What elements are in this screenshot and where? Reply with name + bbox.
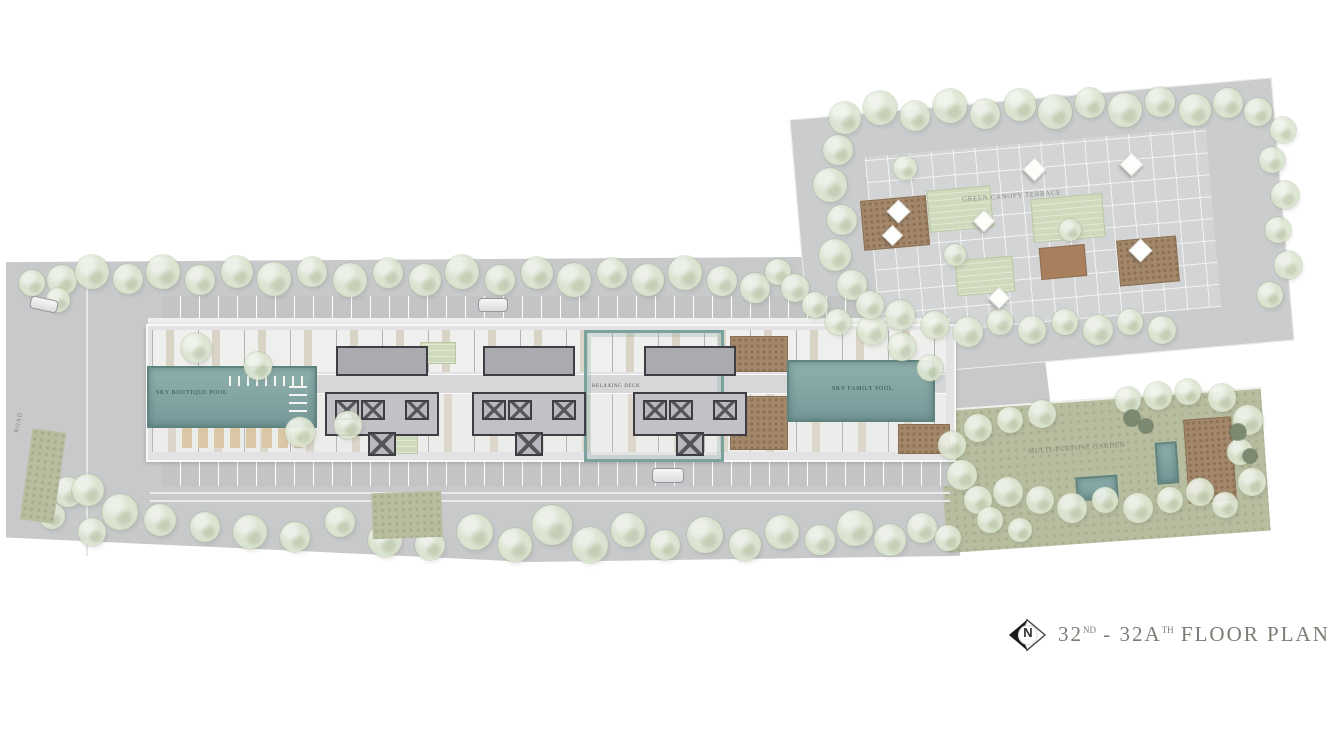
tree-icon bbox=[813, 168, 847, 202]
tree-icon bbox=[457, 514, 493, 550]
tree-icon bbox=[964, 414, 992, 442]
tree-icon bbox=[907, 513, 937, 543]
tree-icon bbox=[1075, 88, 1105, 118]
tree-icon bbox=[1265, 217, 1291, 243]
tree-icon bbox=[1212, 492, 1238, 518]
tree-icon bbox=[823, 135, 853, 165]
tree-icon bbox=[1145, 87, 1175, 117]
tree-icon bbox=[970, 99, 1000, 129]
tree-icon bbox=[632, 264, 664, 296]
tree-icon bbox=[333, 263, 367, 297]
tree-icon bbox=[987, 309, 1013, 335]
tree-icon bbox=[900, 101, 930, 131]
tree-icon bbox=[185, 265, 215, 295]
tree-icon bbox=[1186, 478, 1214, 506]
tree-icon bbox=[102, 494, 138, 530]
stair-core bbox=[483, 346, 575, 376]
tree-icon bbox=[334, 411, 362, 439]
tree-icon bbox=[938, 431, 966, 459]
tree-icon bbox=[113, 264, 143, 294]
tree-icon bbox=[1123, 493, 1153, 523]
tree-icon bbox=[78, 518, 106, 546]
tree-icon bbox=[1052, 309, 1078, 335]
tree-icon bbox=[944, 244, 966, 266]
tree-icon bbox=[221, 256, 253, 288]
fir-tree-icon bbox=[1230, 424, 1246, 440]
tree-icon bbox=[893, 156, 917, 180]
car-icon bbox=[478, 298, 508, 312]
tree-icon bbox=[977, 507, 1003, 533]
tree-icon bbox=[885, 300, 915, 330]
title-suffix: FLOOR PLAN bbox=[1174, 622, 1330, 646]
tree-icon bbox=[1028, 400, 1056, 428]
plan-title: 32ND - 32ATH FLOOR PLAN bbox=[1058, 622, 1330, 647]
elevator-shaft-icon bbox=[482, 400, 506, 420]
tree-icon bbox=[1144, 382, 1172, 410]
tree-icon bbox=[707, 266, 737, 296]
car-icon bbox=[652, 468, 684, 483]
tree-icon bbox=[687, 517, 723, 553]
elevator-shaft-icon bbox=[515, 432, 543, 456]
pool-lounger-ticks bbox=[289, 382, 307, 412]
tree-icon bbox=[1026, 486, 1054, 514]
tree-icon bbox=[1175, 379, 1201, 405]
left-pool-label: SKY BOUTIQUE POOL bbox=[156, 390, 227, 396]
tree-icon bbox=[765, 515, 799, 549]
elevator-shaft-icon bbox=[361, 400, 385, 420]
tree-icon bbox=[1257, 282, 1283, 308]
tree-icon bbox=[1092, 487, 1118, 513]
tree-icon bbox=[933, 89, 967, 123]
tree-icon bbox=[297, 257, 327, 287]
tree-icon bbox=[1157, 487, 1183, 513]
tree-icon bbox=[485, 265, 515, 295]
tree-icon bbox=[863, 91, 897, 125]
lane-marking bbox=[150, 492, 950, 494]
tree-icon bbox=[1057, 493, 1087, 523]
tree-icon bbox=[1004, 89, 1036, 121]
relaxing-deck-label: RELAXING DECK bbox=[592, 384, 640, 389]
tree-icon bbox=[1038, 95, 1072, 129]
tree-icon bbox=[825, 309, 851, 335]
tree-icon bbox=[1008, 518, 1032, 542]
elevator-core bbox=[633, 392, 747, 436]
compass-north-letter: N bbox=[1019, 625, 1037, 640]
tree-icon bbox=[146, 255, 180, 289]
floor-from: 32 bbox=[1058, 622, 1083, 646]
furnished-room bbox=[730, 336, 788, 372]
tree-icon bbox=[257, 262, 291, 296]
tree-icon bbox=[993, 477, 1023, 507]
road-edge-line bbox=[86, 258, 88, 556]
tree-icon bbox=[874, 524, 906, 556]
tree-icon bbox=[557, 263, 591, 297]
tree-icon bbox=[856, 291, 884, 319]
tree-icon bbox=[521, 257, 553, 289]
stair-core bbox=[336, 346, 428, 376]
elevator-core bbox=[472, 392, 586, 436]
tree-icon bbox=[572, 527, 608, 563]
tree-icon bbox=[1117, 309, 1143, 335]
lounger-row bbox=[182, 426, 302, 448]
right-pool-label: SKY FAMILY POOL bbox=[832, 386, 893, 392]
tree-icon bbox=[373, 258, 403, 288]
lawn-patch bbox=[371, 491, 443, 539]
tree-icon bbox=[75, 255, 109, 289]
floor-from-sup: ND bbox=[1083, 625, 1096, 635]
floor-plan-canvas: SKY BOUTIQUE POOL SKY FAMILY POOL RELAXI… bbox=[0, 0, 1342, 754]
tree-icon bbox=[445, 255, 479, 289]
elevator-shaft-icon bbox=[643, 400, 667, 420]
stair-core bbox=[644, 346, 736, 376]
tree-icon bbox=[837, 510, 873, 546]
tree-icon bbox=[498, 528, 532, 562]
tree-icon bbox=[819, 239, 851, 271]
tree-icon bbox=[1271, 181, 1299, 209]
garden-water-feature bbox=[1155, 441, 1180, 484]
elevator-shaft-icon bbox=[552, 400, 576, 420]
plan-title-block: N 32ND - 32ATH FLOOR PLAN bbox=[1006, 614, 1336, 658]
tree-icon bbox=[650, 530, 680, 560]
tree-icon bbox=[935, 525, 961, 551]
terrace-planter-brown bbox=[1039, 244, 1088, 280]
tree-icon bbox=[953, 317, 983, 347]
tree-icon bbox=[997, 407, 1023, 433]
tree-icon bbox=[1083, 315, 1113, 345]
tree-icon bbox=[190, 512, 220, 542]
tree-icon bbox=[244, 352, 272, 380]
floor-to: 32A bbox=[1120, 622, 1162, 646]
tree-icon bbox=[1059, 219, 1081, 241]
tree-icon bbox=[802, 292, 828, 318]
tree-icon bbox=[72, 474, 104, 506]
tree-icon bbox=[1213, 88, 1243, 118]
tree-icon bbox=[668, 256, 702, 290]
tree-icon bbox=[532, 505, 572, 545]
tree-icon bbox=[325, 507, 355, 537]
lane-marking bbox=[150, 500, 950, 502]
tree-icon bbox=[19, 270, 45, 296]
tree-icon bbox=[597, 258, 627, 288]
tree-icon bbox=[857, 315, 887, 345]
tree-icon bbox=[1270, 117, 1296, 143]
elevator-shaft-icon bbox=[669, 400, 693, 420]
tree-icon bbox=[181, 333, 211, 363]
elevator-shaft-icon bbox=[676, 432, 704, 456]
fir-tree-icon bbox=[1139, 419, 1153, 433]
elevator-shaft-icon bbox=[405, 400, 429, 420]
fir-tree-icon bbox=[1243, 449, 1257, 463]
fir-tree-icon bbox=[1124, 410, 1140, 426]
tree-icon bbox=[888, 333, 916, 361]
tree-icon bbox=[280, 522, 310, 552]
elevator-shaft-icon bbox=[508, 400, 532, 420]
tree-icon bbox=[917, 355, 943, 381]
tree-icon bbox=[729, 529, 761, 561]
tree-icon bbox=[805, 525, 835, 555]
tree-icon bbox=[1179, 94, 1211, 126]
tree-icon bbox=[1148, 316, 1176, 344]
tree-icon bbox=[1238, 468, 1266, 496]
elevator-shaft-icon bbox=[368, 432, 396, 456]
elevator-shaft-icon bbox=[713, 400, 737, 420]
tree-icon bbox=[1115, 387, 1141, 413]
tree-icon bbox=[233, 515, 267, 549]
tree-icon bbox=[921, 311, 949, 339]
tree-icon bbox=[611, 513, 645, 547]
title-separator: - bbox=[1096, 622, 1120, 646]
terrace-deck-brown-right bbox=[1116, 235, 1180, 286]
tree-icon bbox=[285, 417, 315, 447]
tree-icon bbox=[144, 504, 176, 536]
tree-icon bbox=[1208, 384, 1236, 412]
tree-icon bbox=[1244, 98, 1272, 126]
tree-icon bbox=[1108, 93, 1142, 127]
tree-icon bbox=[947, 460, 977, 490]
tree-icon bbox=[1259, 147, 1285, 173]
tree-icon bbox=[1274, 251, 1302, 279]
floor-to-sup: TH bbox=[1162, 625, 1174, 635]
tree-icon bbox=[827, 205, 857, 235]
tree-icon bbox=[1018, 316, 1046, 344]
tree-icon bbox=[829, 102, 861, 134]
tree-icon bbox=[409, 264, 441, 296]
